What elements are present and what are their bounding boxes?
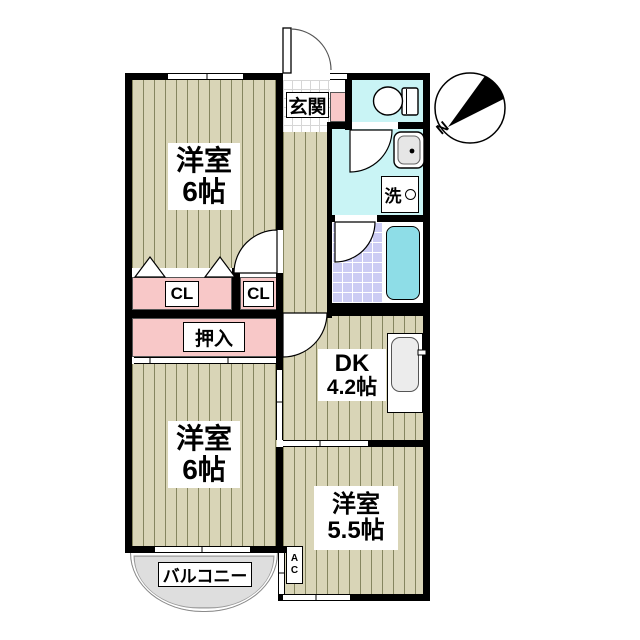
label-closet-right: CL <box>243 281 274 307</box>
north-compass-icon: N <box>433 73 505 143</box>
label-entrance: 玄関 <box>286 92 329 118</box>
label-dk: DK 4.2帖 <box>318 349 386 401</box>
folding-closet-door-icon <box>135 257 235 277</box>
floor-plan: N 洋室 6帖 洋室 6帖 洋室 5.5帖 DK 4.2帖 玄関 CL CL 押… <box>0 0 640 640</box>
label-oshiire: 押入 <box>183 322 245 352</box>
door-arc-room-top <box>234 230 277 273</box>
label-closet-left: CL <box>165 281 199 307</box>
label-ac-unit: A C <box>286 546 303 584</box>
door-arc-washroom <box>350 130 392 172</box>
kitchen-tap-icon <box>418 350 426 355</box>
toilet-icon <box>374 87 419 115</box>
label-western-room-top: 洋室 6帖 <box>168 143 240 210</box>
label-balcony: バルコニー <box>158 562 252 587</box>
laundry-tap-icon <box>405 189 416 200</box>
entry-door-icon <box>283 28 331 73</box>
label-laundry: 洗 <box>381 176 419 213</box>
washbasin-icon <box>394 132 424 168</box>
label-western-room-bottom: 洋室 6帖 <box>168 421 240 488</box>
label-western-room-right: 洋室 5.5帖 <box>314 486 398 550</box>
door-arc-bathroom <box>335 222 375 262</box>
